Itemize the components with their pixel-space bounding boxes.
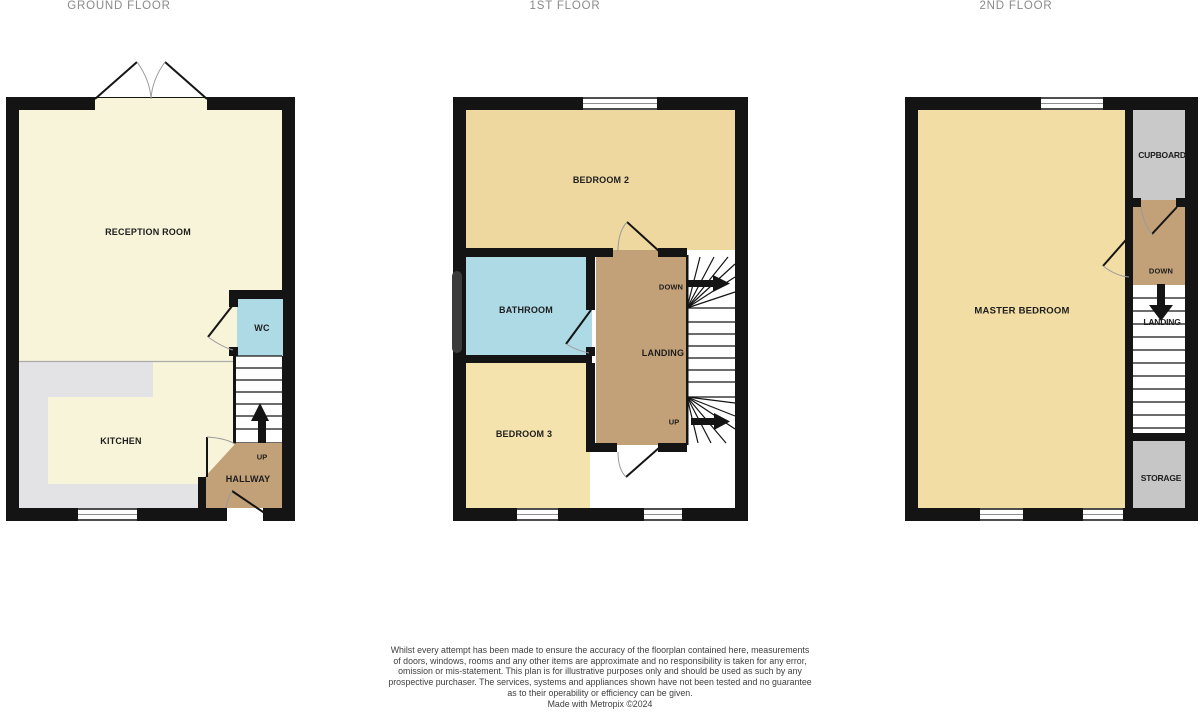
- gf-stair-side-wall: [233, 356, 236, 443]
- label-bathroom: BATHROOM: [499, 305, 553, 315]
- disclaimer-text: Whilst every attempt has been made to en…: [388, 645, 811, 709]
- ff-window-top: [583, 97, 657, 110]
- label-reception-room: RECEPTION ROOM: [105, 227, 191, 237]
- label-master-bedroom: MASTER BEDROOM: [974, 306, 1069, 317]
- label-ff-landing: LANDING: [642, 348, 684, 358]
- label-bedroom3: BEDROOM 3: [496, 429, 552, 439]
- made-with-metropix: Made with Metropix ©2024: [388, 699, 811, 710]
- ground-floor-plan: [6, 62, 295, 521]
- sf-window-top: [1041, 97, 1103, 110]
- first-floor-title: 1ST FLOOR: [530, 0, 601, 12]
- ff-radiator: [452, 271, 462, 353]
- label-sf-down: DOWN: [1149, 267, 1173, 276]
- second-floor-title: 2ND FLOOR: [979, 0, 1052, 12]
- label-cupboard: CUPBOARD: [1138, 150, 1186, 160]
- label-storage: STORAGE: [1141, 473, 1181, 483]
- floorplan-drawing: [0, 0, 1200, 713]
- label-kitchen: KITCHEN: [100, 436, 141, 446]
- sf-window-bottom-right: [1083, 508, 1123, 521]
- label-hallway: HALLWAY: [226, 474, 271, 484]
- disclaimer-line: of doors, windows, rooms and any other i…: [388, 656, 811, 667]
- ff-window-bottom-left: [517, 508, 558, 521]
- ff-window-bottom-right: [644, 508, 682, 521]
- gf-french-door-left-leaf: [95, 62, 137, 99]
- label-gf-up: UP: [257, 453, 268, 462]
- disclaimer-line: as to their operability or efficiency ca…: [388, 688, 811, 699]
- gf-window-bottom: [78, 508, 137, 521]
- disclaimer-line: omission or mis-statement. This plan is …: [388, 666, 811, 677]
- label-ff-up: UP: [669, 418, 680, 427]
- gf-stairs-area: [233, 356, 282, 443]
- label-ff-down: DOWN: [659, 283, 683, 292]
- gf-french-door-right-leaf: [165, 62, 207, 99]
- label-sf-landing: LANDING: [1143, 317, 1180, 327]
- disclaimer-line: prospective purchaser. The services, sys…: [388, 677, 811, 688]
- label-wc: WC: [254, 323, 269, 333]
- ground-floor-title: GROUND FLOOR: [67, 0, 171, 12]
- disclaimer-line: Whilst every attempt has been made to en…: [388, 645, 811, 656]
- floorplan-canvas: GROUND FLOOR 1ST FLOOR 2ND FLOOR RECEPTI…: [0, 0, 1200, 713]
- sf-window-bottom-left: [980, 508, 1023, 521]
- label-bedroom2: BEDROOM 2: [573, 175, 629, 185]
- first-floor-plan: [452, 97, 748, 521]
